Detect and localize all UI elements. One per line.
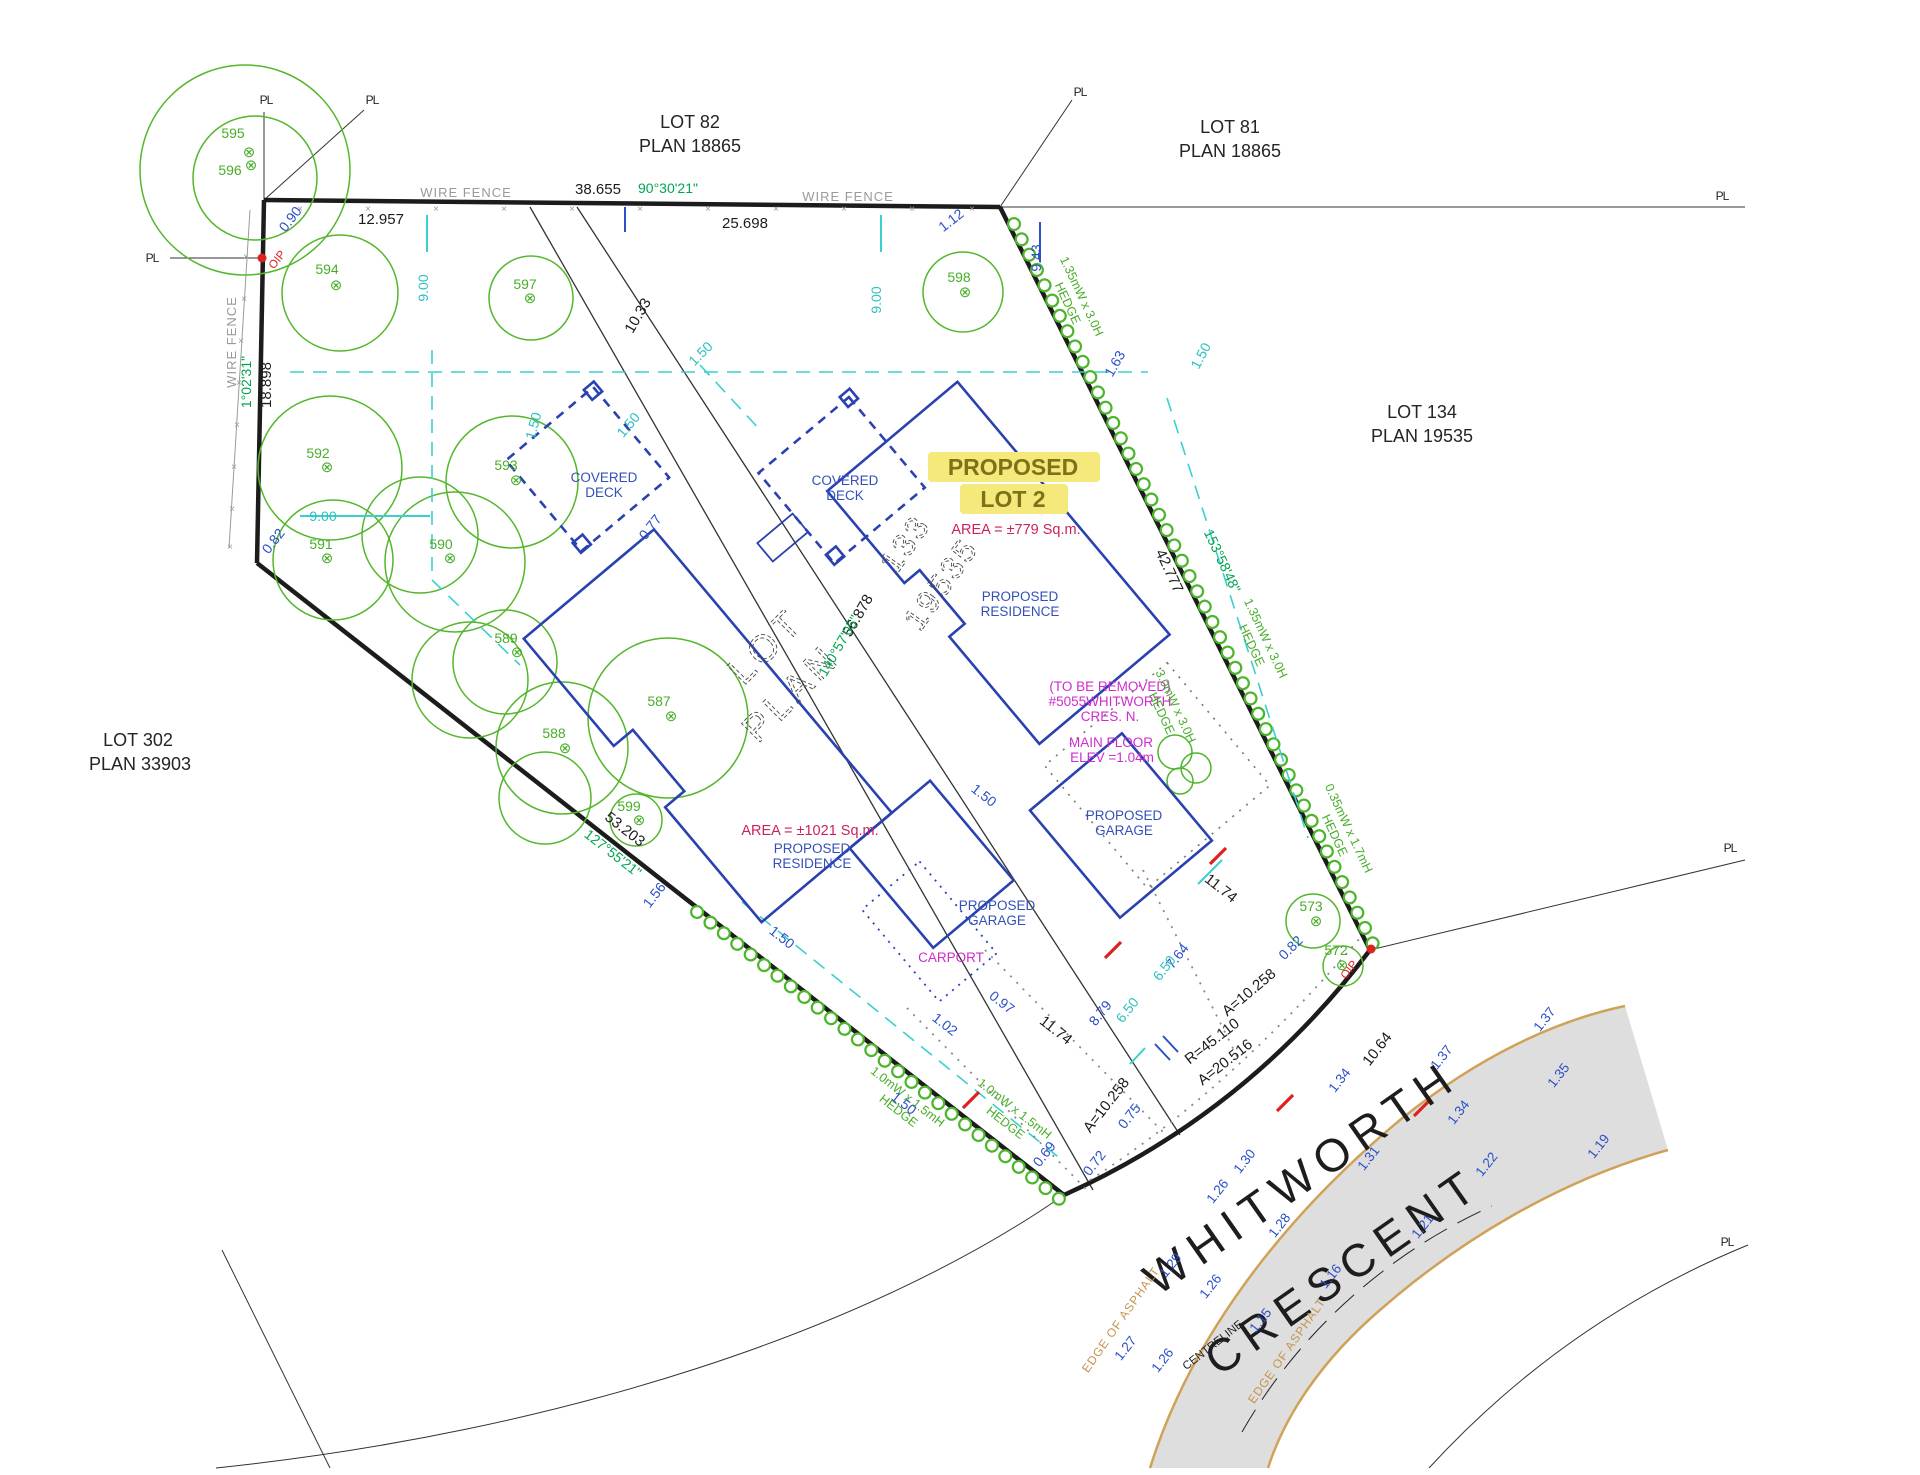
dim-943: 9.43 — [1028, 244, 1044, 271]
pl-line-ne-diagonal — [1000, 100, 1072, 207]
lot134-line — [1370, 860, 1745, 950]
dim-075: 0.75 — [1114, 1100, 1144, 1131]
tree-label-573: 573 — [1299, 898, 1323, 914]
oip-monument-se — [1367, 945, 1376, 954]
tree-symbol-593: ⊗ — [510, 472, 523, 489]
svg-text:×: × — [243, 252, 249, 263]
svg-text:×: × — [433, 204, 439, 215]
dim-12957: 12.957 — [358, 211, 404, 228]
wire-fence-label-2: WIRE FENCE — [802, 189, 894, 204]
tree-label-595: 595 — [221, 125, 245, 141]
right-garage-label-1: PROPOSED — [1086, 808, 1163, 823]
left-deck-post-1 — [584, 381, 602, 399]
tree-crown-596 — [193, 116, 317, 240]
lot302-line — [222, 1250, 330, 1468]
dim-150-e: 1.50 — [766, 922, 797, 952]
lot302-plan: PLAN 33903 — [89, 754, 191, 774]
lot134-label: LOT 134 — [1387, 402, 1457, 422]
dim-650-a: 6.50 — [1112, 994, 1142, 1025]
to-be-removed-1: (TO BE REMOVED) — [1049, 679, 1170, 694]
pl-marker-nw-diag: PL — [366, 93, 380, 107]
dim-112: 1.12 — [935, 205, 966, 235]
dim-38655: 38.655 — [575, 181, 621, 198]
left-residence-label-1: PROPOSED — [774, 841, 851, 856]
dim-150-d: 1.50 — [1187, 340, 1214, 372]
pl-marker-nw-vert: PL — [260, 93, 274, 107]
lot1-area-label: AREA = ±1021 Sq.m. — [741, 823, 878, 839]
svg-text:×: × — [841, 204, 847, 215]
pl-marker-west: PL — [146, 251, 160, 265]
tree-symbol-587: ⊗ — [665, 708, 678, 725]
tree-symbol-589: ⊗ — [511, 644, 524, 661]
tree-symbol-592: ⊗ — [321, 459, 334, 476]
proposed-lot2-line2: LOT 2 — [980, 486, 1045, 512]
road-arc-west — [216, 1195, 1064, 1468]
carport-label: CARPORT — [918, 950, 984, 965]
dim-879: 8.79 — [1085, 997, 1115, 1028]
right-residence-label-2: RESIDENCE — [981, 604, 1060, 619]
pl-marker-ne-diag: PL — [1074, 85, 1088, 99]
lot2-area-label: AREA = ±779 Sq.m. — [951, 522, 1080, 538]
tree-symbol-590: ⊗ — [444, 550, 457, 567]
dim-150-b: 1.50 — [613, 409, 643, 440]
spot-elevation: 1.34 — [1325, 1065, 1353, 1095]
svg-text:×: × — [234, 420, 240, 431]
tree-symbol-573: ⊗ — [1310, 913, 1323, 930]
tree-label-598: 598 — [947, 269, 971, 285]
proposed-lot2-callout: PROPOSED LOT 2 AREA = ±779 Sq.m. — [928, 452, 1100, 538]
tree-label-587: 587 — [647, 693, 671, 709]
lot82-label: LOT 82 — [660, 112, 720, 132]
wire-fence-label-3: WIRE FENCE — [224, 296, 239, 388]
dim-arc-10258-b: A=10.258 — [1219, 965, 1279, 1020]
svg-text:×: × — [569, 204, 575, 215]
road-arc-southeast — [1429, 1245, 1748, 1468]
svg-text:×: × — [501, 204, 507, 215]
lot-plan-drawing: ××× ××× ××× ×× ××× ××× ×× PROPOSED LOT 2… — [0, 0, 1920, 1475]
left-garage-label-2: GARAGE — [968, 913, 1026, 928]
to-be-removed-3: CRES. N. — [1081, 709, 1140, 724]
tree-label-588: 588 — [542, 725, 566, 741]
tree-label-596: 596 — [218, 162, 242, 178]
dim-150-c: 1.50 — [522, 410, 545, 441]
svg-text:×: × — [637, 204, 643, 215]
spot-elevation: 1.26 — [1148, 1345, 1176, 1375]
tree-symbol-588: ⊗ — [559, 740, 572, 757]
tree-label-572: 572 — [1324, 942, 1348, 958]
svg-text:×: × — [227, 542, 233, 553]
old-lot-number: 133 — [872, 508, 937, 580]
svg-text:×: × — [969, 204, 975, 215]
dim-900-b: 9.00 — [868, 286, 884, 313]
angle-10231: 1°02'31" — [238, 356, 254, 408]
dim-150-g: 1.50 — [968, 780, 999, 810]
dim-150-a: 1.50 — [685, 338, 716, 369]
angle-1535848: 153°58'48" — [1201, 527, 1244, 595]
oip-monument-nw — [258, 254, 267, 263]
setback-lines — [290, 350, 1308, 1160]
main-floor-label-2: ELEV =1.04m — [1070, 750, 1154, 765]
left-carport-outline — [862, 861, 997, 1001]
dim-1174-a: 11.74 — [1036, 1013, 1075, 1049]
tree-crown-extra3 — [499, 752, 591, 844]
old-lot-line-b — [577, 207, 1180, 1135]
pl-marker-east-top: PL — [1716, 189, 1730, 203]
left-deck-label-2: DECK — [585, 485, 623, 500]
proposed-lot2-line1: PROPOSED — [948, 454, 1078, 480]
main-floor-label-1: MAIN FLOOR — [1069, 735, 1153, 750]
tree-symbol-594: ⊗ — [330, 277, 343, 294]
tree-label-593: 593 — [494, 457, 518, 473]
oip-label-nw: OIP — [267, 248, 289, 271]
right-deck-label-2: DECK — [826, 488, 864, 503]
dim-25698: 25.698 — [722, 215, 768, 232]
tree-crown-extra1 — [362, 477, 478, 593]
dim-900-a: 9.00 — [415, 274, 431, 301]
svg-text:×: × — [229, 504, 235, 515]
lot302-label: LOT 302 — [103, 730, 173, 750]
bearing-angles: 90°30'21" 1°02'31" 140°57'05" 127°55'21"… — [238, 180, 1244, 880]
dim-082-b: 0.82 — [1275, 932, 1306, 963]
tree-symbol-596: ⊗ — [245, 157, 258, 174]
right-deck-stair — [757, 514, 808, 562]
tree-symbol-598: ⊗ — [959, 284, 972, 301]
tree-symbol-597: ⊗ — [524, 290, 537, 307]
lot82-plan: PLAN 18865 — [639, 136, 741, 156]
spot-elevation: 1.30 — [1230, 1146, 1258, 1176]
reference-lines — [170, 100, 1748, 1468]
dim-1174-b: 11.74 — [1201, 871, 1240, 907]
pl-marker-east-bottom: PL — [1721, 1235, 1735, 1249]
left-residence-label-2: RESIDENCE — [773, 856, 852, 871]
svg-text:×: × — [241, 294, 247, 305]
svg-text:×: × — [909, 204, 915, 215]
tree-label-594: 594 — [315, 261, 339, 277]
dim-082-a: 0.82 — [258, 525, 288, 556]
dim-18898: 18.898 — [258, 362, 275, 408]
dim-900-c: 9.00 — [309, 508, 336, 524]
wire-fence-label-1: WIRE FENCE — [420, 185, 512, 200]
wire-fence-labels: WIRE FENCE WIRE FENCE WIRE FENCE — [224, 185, 894, 388]
lot81-plan: PLAN 18865 — [1179, 141, 1281, 161]
lot-plan-canvas: ××× ××× ××× ×× ××× ××× ×× PROPOSED LOT 2… — [0, 0, 1920, 1475]
right-residence-label-1: PROPOSED — [982, 589, 1059, 604]
right-deck-label-1: COVERED — [812, 473, 879, 488]
lot134-plan: PLAN 19535 — [1371, 426, 1473, 446]
left-deck-label-1: COVERED — [571, 470, 638, 485]
svg-text:×: × — [705, 204, 711, 215]
svg-text:×: × — [231, 462, 237, 473]
tree-symbol-591: ⊗ — [321, 550, 334, 567]
dim-1033: 10.33 — [621, 295, 654, 336]
pl-marker-east-mid: PL — [1724, 841, 1738, 855]
dim-1064: 10.64 — [1359, 1029, 1396, 1069]
lot81-label: LOT 81 — [1200, 117, 1260, 137]
tree-crown-589 — [453, 610, 557, 714]
dim-163: 1.63 — [1101, 348, 1129, 380]
svg-text:×: × — [773, 204, 779, 215]
right-garage-label-2: GARAGE — [1095, 823, 1153, 838]
tree-symbol-599: ⊗ — [633, 812, 646, 829]
left-garage-label-1: PROPOSED — [959, 898, 1036, 913]
angle-903021: 90°30'21" — [638, 180, 698, 196]
